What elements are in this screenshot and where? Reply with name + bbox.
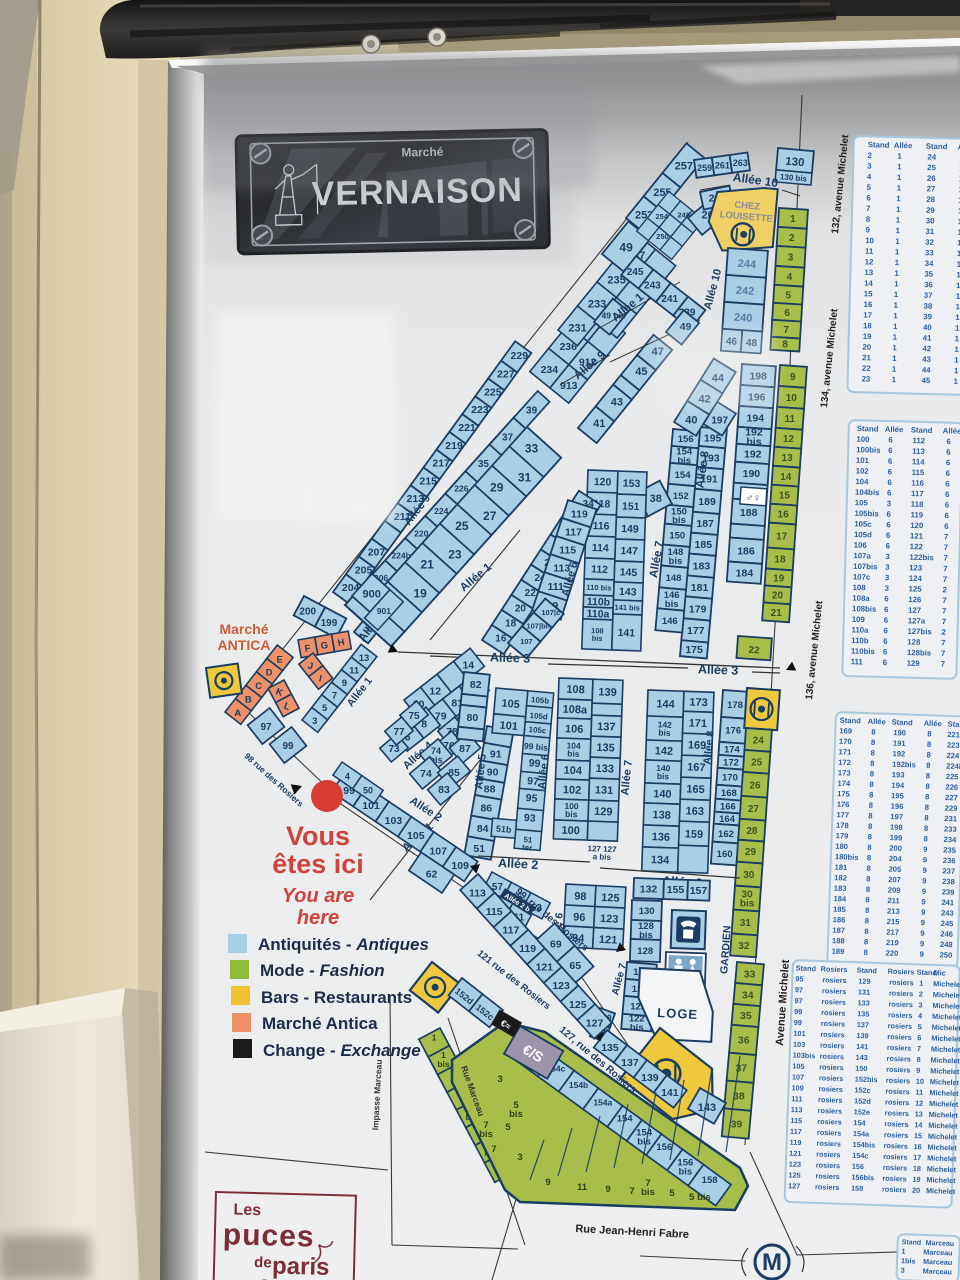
svg-text:183: 183 <box>834 884 847 893</box>
svg-text:243: 243 <box>644 281 661 292</box>
svg-text:186: 186 <box>833 915 846 924</box>
svg-text:137: 137 <box>621 1057 639 1069</box>
svg-text:Michelet: Michelet <box>932 1001 960 1011</box>
svg-text:Michelet: Michelet <box>929 1099 959 1109</box>
svg-text:33: 33 <box>525 442 539 456</box>
svg-text:143: 143 <box>698 1102 716 1114</box>
svg-text:45: 45 <box>635 366 647 378</box>
svg-text:197: 197 <box>890 812 903 821</box>
svg-text:173: 173 <box>838 768 851 777</box>
svg-text:97: 97 <box>260 722 272 733</box>
svg-text:196: 196 <box>891 802 904 811</box>
svg-text:100bis: 100bis <box>856 445 881 455</box>
svg-text:40: 40 <box>923 323 933 332</box>
svg-text:40: 40 <box>685 415 697 427</box>
svg-text:901: 901 <box>377 606 391 616</box>
svg-text:148: 148 <box>666 573 682 584</box>
svg-text:8: 8 <box>865 895 870 904</box>
svg-text:20: 20 <box>862 342 872 351</box>
svg-text:8: 8 <box>925 803 930 812</box>
svg-text:77: 77 <box>393 727 405 738</box>
svg-text:129: 129 <box>594 806 613 819</box>
svg-text:8: 8 <box>870 748 875 757</box>
svg-text:139: 139 <box>856 1031 868 1040</box>
svg-text:8: 8 <box>868 832 873 841</box>
svg-text:9: 9 <box>922 876 927 885</box>
svg-text:154a: 154a <box>853 1129 870 1139</box>
svg-text:157: 157 <box>690 885 708 897</box>
svg-text:80: 80 <box>466 712 478 724</box>
svg-text:10: 10 <box>786 393 798 404</box>
svg-text:152bis: 152bis <box>855 1075 878 1085</box>
svg-text:136: 136 <box>651 831 670 844</box>
svg-text:115: 115 <box>912 468 925 477</box>
svg-text:150: 150 <box>669 531 685 542</box>
svg-text:217: 217 <box>432 458 450 470</box>
svg-text:154: 154 <box>675 470 692 481</box>
svg-text:240: 240 <box>734 312 753 325</box>
svg-text:226: 226 <box>945 782 958 791</box>
svg-text:30: 30 <box>743 870 755 881</box>
svg-text:261: 261 <box>715 160 730 170</box>
svg-text:rosiers: rosiers <box>888 1021 913 1031</box>
svg-text:112: 112 <box>912 436 925 445</box>
svg-text:121: 121 <box>536 962 554 974</box>
svg-text:C: C <box>255 681 262 692</box>
svg-text:146: 146 <box>662 616 678 627</box>
svg-text:3: 3 <box>497 1074 502 1085</box>
svg-text:219: 219 <box>886 938 899 947</box>
svg-text:16: 16 <box>863 300 873 309</box>
svg-text:19: 19 <box>413 586 427 600</box>
svg-text:192bis: 192bis <box>892 760 916 770</box>
svg-text:bis: bis <box>509 1109 523 1120</box>
svg-text:35: 35 <box>478 459 490 470</box>
svg-text:Allée 2: Allée 2 <box>498 856 539 872</box>
svg-text:8: 8 <box>866 874 871 883</box>
svg-text:111: 111 <box>791 1094 803 1103</box>
svg-text:12: 12 <box>429 686 441 698</box>
svg-text:30: 30 <box>926 216 936 225</box>
svg-text:168: 168 <box>721 788 737 799</box>
svg-text:bis: bis <box>567 748 580 758</box>
svg-text:7: 7 <box>917 1044 921 1053</box>
svg-text:105: 105 <box>407 830 425 842</box>
svg-text:179: 179 <box>836 831 849 840</box>
svg-text:181: 181 <box>834 863 848 872</box>
svg-text:257: 257 <box>675 161 693 173</box>
svg-text:9: 9 <box>922 887 927 896</box>
svg-text:You are: You are <box>282 885 355 907</box>
svg-text:27: 27 <box>483 509 497 523</box>
svg-text:102: 102 <box>563 784 582 797</box>
svg-text:9: 9 <box>920 939 925 948</box>
svg-text:51b: 51b <box>496 824 513 835</box>
svg-text:125: 125 <box>569 999 587 1011</box>
svg-text:17: 17 <box>863 311 872 320</box>
svg-text:36: 36 <box>738 1035 750 1047</box>
svg-text:126: 126 <box>908 595 922 604</box>
svg-text:229: 229 <box>511 350 529 362</box>
svg-text:154bis: 154bis <box>852 1140 875 1150</box>
svg-text:16: 16 <box>495 633 507 644</box>
svg-text:rosiers: rosiers <box>816 1160 841 1170</box>
svg-text:154c: 154c <box>852 1151 869 1161</box>
svg-text:189: 189 <box>831 947 844 956</box>
svg-text:8: 8 <box>869 780 874 789</box>
svg-text:rosiers: rosiers <box>883 1152 908 1162</box>
svg-text:219: 219 <box>445 440 463 452</box>
svg-text:ANTICA: ANTICA <box>218 637 271 653</box>
svg-text:160: 160 <box>717 849 733 860</box>
svg-text:êtes ici: êtes ici <box>272 849 364 879</box>
svg-text:rosiers: rosiers <box>820 1051 845 1061</box>
svg-text:119: 119 <box>789 1138 801 1147</box>
svg-text:86: 86 <box>480 802 492 814</box>
svg-text:174: 174 <box>724 745 741 756</box>
svg-text:87: 87 <box>459 743 471 755</box>
svg-text:29: 29 <box>926 206 936 215</box>
svg-text:175: 175 <box>837 789 851 798</box>
svg-text:3: 3 <box>918 1000 922 1009</box>
svg-text:31: 31 <box>925 227 935 236</box>
svg-text:Marceau: Marceau <box>923 1266 952 1276</box>
svg-text:24: 24 <box>927 152 937 161</box>
svg-text:bis: bis <box>565 809 578 819</box>
svg-text:127: 127 <box>788 1181 800 1190</box>
svg-text:254: 254 <box>655 212 668 221</box>
svg-text:35: 35 <box>740 1010 752 1022</box>
svg-text:41: 41 <box>923 333 933 342</box>
svg-text:223: 223 <box>471 404 489 416</box>
svg-text:12: 12 <box>915 1098 923 1107</box>
svg-text:rosiers: rosiers <box>816 1150 841 1160</box>
svg-text:Bars - Restaurants: Bars - Restaurants <box>261 988 412 1007</box>
svg-text:bis: bis <box>630 1022 644 1033</box>
svg-text:105b: 105b <box>531 695 550 706</box>
svg-text:143: 143 <box>855 1053 867 1062</box>
svg-text:913: 913 <box>560 380 578 392</box>
svg-text:14: 14 <box>462 660 474 672</box>
svg-text:105: 105 <box>501 698 520 712</box>
svg-text:rosiers: rosiers <box>885 1097 910 1107</box>
svg-text:13: 13 <box>864 268 874 277</box>
svg-text:158: 158 <box>851 1183 863 1192</box>
svg-text:108: 108 <box>566 684 585 697</box>
svg-text:rosiers: rosiers <box>886 1054 911 1064</box>
svg-text:121: 121 <box>910 531 924 540</box>
svg-text:125: 125 <box>788 1170 800 1179</box>
svg-text:Michelet: Michelet <box>927 1153 957 1163</box>
svg-text:226: 226 <box>454 484 468 494</box>
svg-text:15: 15 <box>779 491 791 502</box>
svg-text:73: 73 <box>388 744 400 755</box>
svg-text:220: 220 <box>414 528 428 538</box>
svg-text:Stand: Stand <box>911 425 933 435</box>
svg-text:245: 245 <box>627 267 644 278</box>
svg-text:rosiers: rosiers <box>889 978 914 988</box>
svg-text:105c: 105c <box>854 519 872 528</box>
svg-text:33: 33 <box>744 968 756 980</box>
svg-text:163: 163 <box>685 805 704 818</box>
svg-text:16: 16 <box>778 510 790 521</box>
svg-text:135: 135 <box>601 1042 619 1054</box>
svg-text:8: 8 <box>869 801 874 810</box>
svg-text:7: 7 <box>944 543 949 552</box>
svg-text:241: 241 <box>941 898 955 907</box>
svg-text:235: 235 <box>943 845 957 854</box>
svg-text:198: 198 <box>890 823 903 832</box>
svg-text:259: 259 <box>697 163 712 173</box>
svg-text:20: 20 <box>912 1186 920 1195</box>
svg-text:224: 224 <box>946 751 960 760</box>
svg-text:Marché Antica: Marché Antica <box>262 1014 378 1033</box>
svg-text:8: 8 <box>865 916 870 925</box>
svg-text:9: 9 <box>605 1184 610 1195</box>
svg-text:141: 141 <box>661 1087 679 1099</box>
svg-text:112: 112 <box>591 563 609 576</box>
svg-text:rosiers: rosiers <box>819 1062 844 1072</box>
svg-text:133: 133 <box>595 763 614 776</box>
svg-text:119: 119 <box>519 943 536 955</box>
svg-text:11: 11 <box>349 665 360 676</box>
svg-text:74: 74 <box>420 768 432 780</box>
svg-text:1: 1 <box>901 1247 905 1256</box>
svg-text:225: 225 <box>946 772 960 781</box>
svg-text:119: 119 <box>571 508 588 520</box>
svg-text:154: 154 <box>853 1118 866 1127</box>
svg-text:7: 7 <box>942 617 947 626</box>
svg-text:Sta: Sta <box>947 720 960 729</box>
svg-text:107: 107 <box>520 637 533 646</box>
svg-text:20: 20 <box>772 590 784 601</box>
svg-text:1: 1 <box>956 292 960 301</box>
svg-text:197: 197 <box>711 416 728 427</box>
svg-text:rosiers: rosiers <box>818 1095 843 1105</box>
svg-text:83: 83 <box>438 784 450 796</box>
svg-text:115: 115 <box>790 1116 802 1125</box>
svg-text:171: 171 <box>688 717 707 730</box>
svg-text:221: 221 <box>458 422 476 434</box>
svg-text:1: 1 <box>956 270 960 279</box>
svg-text:11: 11 <box>577 1182 588 1193</box>
svg-text:186: 186 <box>737 546 755 558</box>
svg-text:1: 1 <box>790 214 796 225</box>
svg-text:9: 9 <box>923 855 928 864</box>
svg-text:176: 176 <box>837 800 850 809</box>
svg-text:125: 125 <box>601 892 620 905</box>
svg-text:115: 115 <box>486 906 503 918</box>
svg-text:109: 109 <box>852 615 866 624</box>
svg-text:8: 8 <box>866 864 871 873</box>
svg-text:90: 90 <box>487 766 499 778</box>
svg-text:231: 231 <box>944 814 958 823</box>
svg-text:Michelet: Michelet <box>931 1044 960 1054</box>
svg-text:175: 175 <box>685 644 703 656</box>
svg-text:171: 171 <box>838 747 852 756</box>
svg-text:8: 8 <box>866 885 871 894</box>
svg-text:246: 246 <box>940 929 953 938</box>
svg-text:Michelet: Michelet <box>932 1012 960 1022</box>
svg-text:6: 6 <box>917 1033 921 1042</box>
svg-text:4: 4 <box>345 771 350 781</box>
svg-text:Vous: Vous <box>286 821 350 851</box>
svg-text:120: 120 <box>594 476 612 489</box>
svg-text:3: 3 <box>901 1266 905 1275</box>
svg-text:♂♀: ♂♀ <box>745 492 761 504</box>
svg-text:184: 184 <box>736 567 754 579</box>
svg-text:117: 117 <box>502 924 519 936</box>
svg-text:51: 51 <box>473 843 485 855</box>
svg-text:27: 27 <box>927 184 936 193</box>
svg-text:21: 21 <box>420 558 434 572</box>
svg-text:28: 28 <box>926 195 936 204</box>
svg-text:5: 5 <box>505 1122 511 1133</box>
svg-text:rosiers: rosiers <box>887 1032 912 1042</box>
svg-text:Stand: Stand <box>796 963 817 973</box>
svg-text:21: 21 <box>771 608 783 619</box>
svg-text:188: 188 <box>832 936 845 945</box>
svg-text:Allée 3: Allée 3 <box>698 662 739 677</box>
svg-text:28: 28 <box>746 826 758 837</box>
svg-text:110 bis: 110 bis <box>586 583 611 593</box>
svg-text:140: 140 <box>653 788 672 801</box>
svg-text:Marceau: Marceau <box>923 1257 952 1267</box>
svg-text:263: 263 <box>733 158 748 168</box>
svg-text:193: 193 <box>892 770 905 779</box>
svg-text:124: 124 <box>909 574 923 583</box>
svg-text:Rosiers: Rosiers <box>821 964 848 974</box>
svg-text:8: 8 <box>865 906 870 915</box>
svg-text:11: 11 <box>865 247 874 256</box>
svg-text:103: 103 <box>385 815 403 827</box>
svg-text:123: 123 <box>600 913 619 926</box>
svg-text:128: 128 <box>907 637 921 646</box>
svg-text:Marché: Marché <box>219 621 268 637</box>
svg-text:243: 243 <box>941 908 954 917</box>
svg-text:147: 147 <box>620 545 638 558</box>
svg-text:200: 200 <box>299 607 316 618</box>
svg-text:Allée: Allée <box>924 719 942 729</box>
svg-text:Allée: Allée <box>885 425 905 435</box>
svg-text:117: 117 <box>790 1127 802 1136</box>
svg-text:1: 1 <box>955 313 960 322</box>
svg-text:26: 26 <box>749 780 761 791</box>
svg-text:5: 5 <box>918 1022 922 1031</box>
svg-text:32: 32 <box>738 941 750 952</box>
svg-text:12: 12 <box>783 434 795 445</box>
svg-text:Michelet: Michelet <box>933 990 960 1000</box>
svg-text:150: 150 <box>855 1064 867 1073</box>
svg-text:5: 5 <box>785 290 791 301</box>
svg-text:8: 8 <box>925 782 930 791</box>
svg-text:156bis: 156bis <box>851 1173 874 1183</box>
svg-text:rosiers: rosiers <box>883 1163 908 1173</box>
svg-text:13: 13 <box>782 453 794 464</box>
svg-text:75: 75 <box>408 711 420 722</box>
svg-text:108a: 108a <box>562 704 588 717</box>
svg-text:114: 114 <box>912 457 925 466</box>
svg-text:de: de <box>254 1254 272 1271</box>
svg-text:7: 7 <box>943 564 948 573</box>
svg-text:205: 205 <box>355 564 373 576</box>
svg-text:104: 104 <box>563 765 583 778</box>
svg-text:227: 227 <box>497 369 515 381</box>
svg-text:19: 19 <box>773 574 785 585</box>
svg-text:158: 158 <box>702 1175 718 1186</box>
svg-text:131: 131 <box>858 987 870 996</box>
svg-text:8: 8 <box>782 340 788 351</box>
svg-text:39: 39 <box>731 1118 743 1130</box>
svg-text:238: 238 <box>942 877 955 886</box>
svg-text:129: 129 <box>858 976 870 985</box>
svg-text:15: 15 <box>914 1131 922 1140</box>
svg-text:Stand: Stand <box>902 1239 922 1247</box>
svg-text:8: 8 <box>926 761 931 770</box>
svg-text:250: 250 <box>656 232 669 241</box>
svg-text:rosiers: rosiers <box>817 1117 842 1127</box>
svg-text:99: 99 <box>794 1007 802 1016</box>
svg-text:182: 182 <box>834 873 847 882</box>
svg-text:36: 36 <box>924 280 934 289</box>
svg-text:1: 1 <box>432 1032 437 1042</box>
svg-text:165: 165 <box>686 783 705 796</box>
svg-text:6: 6 <box>784 308 790 319</box>
svg-text:107c: 107c <box>853 572 871 581</box>
svg-text:233: 233 <box>944 824 957 833</box>
svg-text:100: 100 <box>561 825 580 838</box>
svg-text:143: 143 <box>619 586 637 599</box>
svg-text:122bis: 122bis <box>909 553 934 563</box>
svg-text:39: 39 <box>923 312 933 321</box>
svg-text:Michelet: Michelet <box>926 1186 956 1196</box>
svg-text:107: 107 <box>429 845 447 857</box>
svg-text:187: 187 <box>696 518 714 530</box>
svg-text:44: 44 <box>922 365 932 374</box>
svg-text:38: 38 <box>923 301 933 310</box>
svg-text:185: 185 <box>695 539 713 551</box>
svg-text:Allée: Allée <box>894 141 914 151</box>
svg-text:129: 129 <box>907 659 921 668</box>
svg-text:Change - Exchange: Change - Exchange <box>263 1041 421 1060</box>
svg-text:37: 37 <box>924 291 933 300</box>
svg-text:127a: 127a <box>908 616 926 625</box>
svg-text:145: 145 <box>619 566 637 579</box>
svg-text:bis: bis <box>641 1187 655 1198</box>
svg-text:rosiers: rosiers <box>818 1106 843 1116</box>
svg-text:106: 106 <box>565 723 584 736</box>
svg-text:rosiers: rosiers <box>885 1108 910 1118</box>
svg-text:23: 23 <box>862 374 872 383</box>
svg-text:119: 119 <box>910 510 923 519</box>
svg-text:22: 22 <box>525 588 537 599</box>
svg-text:45: 45 <box>922 376 932 385</box>
svg-text:rosiers: rosiers <box>818 1084 843 1094</box>
svg-text:19: 19 <box>912 1175 920 1184</box>
svg-text:8: 8 <box>871 738 876 747</box>
svg-text:107: 107 <box>792 1072 804 1081</box>
svg-text:69: 69 <box>550 939 562 951</box>
svg-text:103bis: 103bis <box>793 1051 816 1061</box>
svg-text:250: 250 <box>939 950 952 959</box>
svg-text:105d: 105d <box>529 711 548 722</box>
svg-text:7: 7 <box>866 204 871 213</box>
svg-text:177: 177 <box>836 810 849 819</box>
svg-text:7: 7 <box>941 638 946 647</box>
svg-text:98: 98 <box>574 890 587 903</box>
svg-text:7: 7 <box>629 1186 634 1197</box>
svg-text:rosiers: rosiers <box>884 1119 909 1129</box>
